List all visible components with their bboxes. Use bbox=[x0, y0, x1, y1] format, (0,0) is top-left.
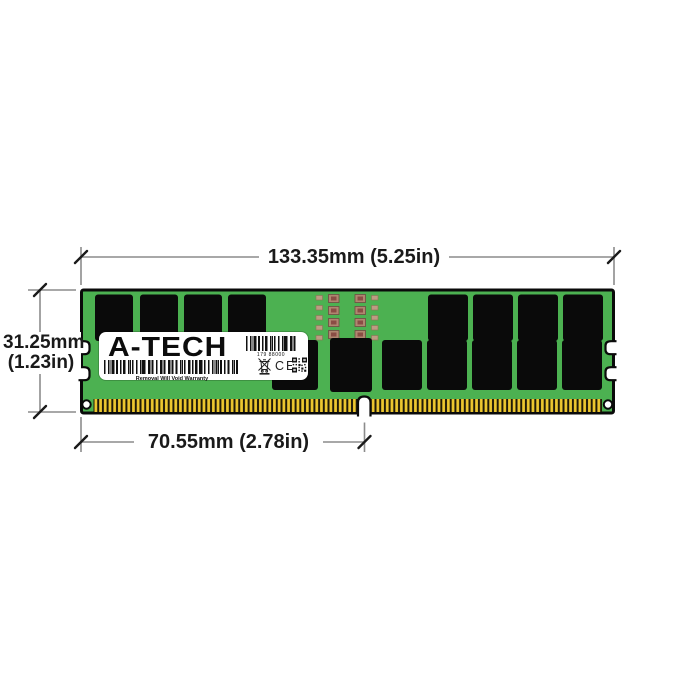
smd-component bbox=[372, 336, 379, 341]
smd-component-core bbox=[358, 297, 364, 301]
barcode-icon bbox=[246, 336, 296, 351]
warranty-text: Removal Will Void Warranty bbox=[104, 376, 240, 382]
height-dimension-label: 31.25mm (1.23in) bbox=[1, 332, 81, 374]
mounting-hole-right bbox=[604, 400, 612, 408]
memory-chip bbox=[518, 295, 558, 342]
memory-chip bbox=[428, 295, 468, 342]
memory-chip bbox=[517, 340, 557, 390]
ram-module-dimension-diagram: A-TECH 179 88000 Removal Will Void Warra… bbox=[0, 0, 700, 700]
smd-component-core bbox=[358, 321, 364, 325]
smd-component-core bbox=[358, 309, 364, 313]
memory-chip bbox=[427, 340, 467, 390]
smd-component bbox=[372, 306, 379, 311]
memory-chip bbox=[562, 340, 602, 390]
qr-code-icon bbox=[292, 357, 307, 378]
smd-component-core bbox=[331, 333, 337, 337]
smd-component-core bbox=[331, 309, 337, 313]
brand-logo: A-TECH bbox=[108, 332, 227, 363]
memory-chip bbox=[382, 340, 422, 390]
smd-component bbox=[372, 326, 379, 331]
smd-component-core bbox=[331, 321, 337, 325]
width-dimension-label: 133.35mm (5.25in) bbox=[259, 246, 449, 268]
smd-component bbox=[316, 326, 323, 331]
memory-chip bbox=[472, 340, 512, 390]
key-notch-mask bbox=[352, 417, 377, 423]
barcode-icon bbox=[104, 360, 240, 374]
retention-notch-right-upper bbox=[606, 341, 617, 354]
key-notch bbox=[358, 397, 371, 418]
gold-pin-strip bbox=[94, 399, 603, 412]
smd-component bbox=[316, 336, 323, 341]
smd-component-core bbox=[358, 333, 364, 337]
weee-crossed-bin-icon bbox=[257, 357, 272, 380]
height-dimension-label-line1: 31.25mm bbox=[3, 333, 79, 353]
smd-component bbox=[316, 316, 323, 321]
retention-notch-right-lower bbox=[606, 367, 617, 380]
smd-component bbox=[316, 306, 323, 311]
smd-component bbox=[316, 296, 323, 301]
memory-chip bbox=[473, 295, 513, 342]
mounting-hole-left bbox=[82, 400, 90, 408]
memory-chip bbox=[563, 295, 603, 342]
height-dimension-label-line2: (1.23in) bbox=[3, 353, 79, 373]
register-chip bbox=[330, 338, 372, 392]
smd-component bbox=[372, 316, 379, 321]
product-label: A-TECH 179 88000 Removal Will Void Warra… bbox=[99, 332, 308, 380]
smd-component-core bbox=[331, 297, 337, 301]
pinspan-dimension-label: 70.55mm (2.78in) bbox=[134, 431, 323, 453]
smd-component bbox=[372, 296, 379, 301]
